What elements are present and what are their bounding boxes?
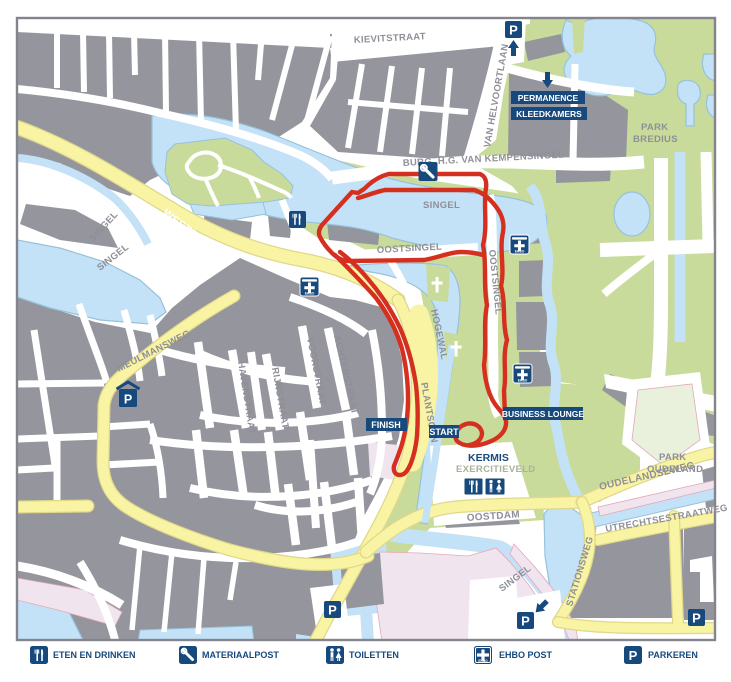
svg-text:ETEN EN DRINKEN: ETEN EN DRINKEN bbox=[53, 650, 136, 660]
svg-text:P: P bbox=[124, 393, 132, 407]
svg-text:P: P bbox=[629, 648, 638, 663]
svg-text:PERMANENCE: PERMANENCE bbox=[518, 93, 579, 103]
svg-text:PARKEREN: PARKEREN bbox=[648, 650, 698, 660]
svg-text:KERMIS: KERMIS bbox=[468, 452, 509, 464]
svg-text:BREDIUS: BREDIUS bbox=[633, 134, 678, 145]
svg-text:P: P bbox=[692, 611, 701, 626]
svg-text:START: START bbox=[429, 427, 459, 437]
svg-text:FINISH: FINISH bbox=[371, 420, 401, 430]
svg-text:EHBO: EHBO bbox=[518, 379, 528, 383]
svg-text:BUSINESS LOUNGE: BUSINESS LOUNGE bbox=[502, 409, 585, 419]
svg-text:EHBO: EHBO bbox=[305, 292, 315, 296]
svg-text:EHBO: EHBO bbox=[515, 250, 525, 254]
svg-text:P: P bbox=[509, 23, 518, 38]
svg-text:P: P bbox=[328, 603, 337, 618]
svg-text:PARK: PARK bbox=[659, 452, 686, 463]
svg-text:EHBO POST: EHBO POST bbox=[499, 650, 553, 660]
svg-text:MATERIAALPOST: MATERIAALPOST bbox=[202, 650, 279, 660]
svg-text:PARK: PARK bbox=[641, 122, 668, 133]
svg-text:KLEEDKAMERS: KLEEDKAMERS bbox=[516, 109, 582, 119]
svg-text:P: P bbox=[521, 614, 530, 629]
svg-text:SINGEL: SINGEL bbox=[423, 200, 460, 211]
svg-text:EHBO: EHBO bbox=[478, 659, 488, 663]
svg-text:EXERCITIEVELD: EXERCITIEVELD bbox=[456, 464, 535, 475]
svg-text:TOILETTEN: TOILETTEN bbox=[349, 650, 399, 660]
